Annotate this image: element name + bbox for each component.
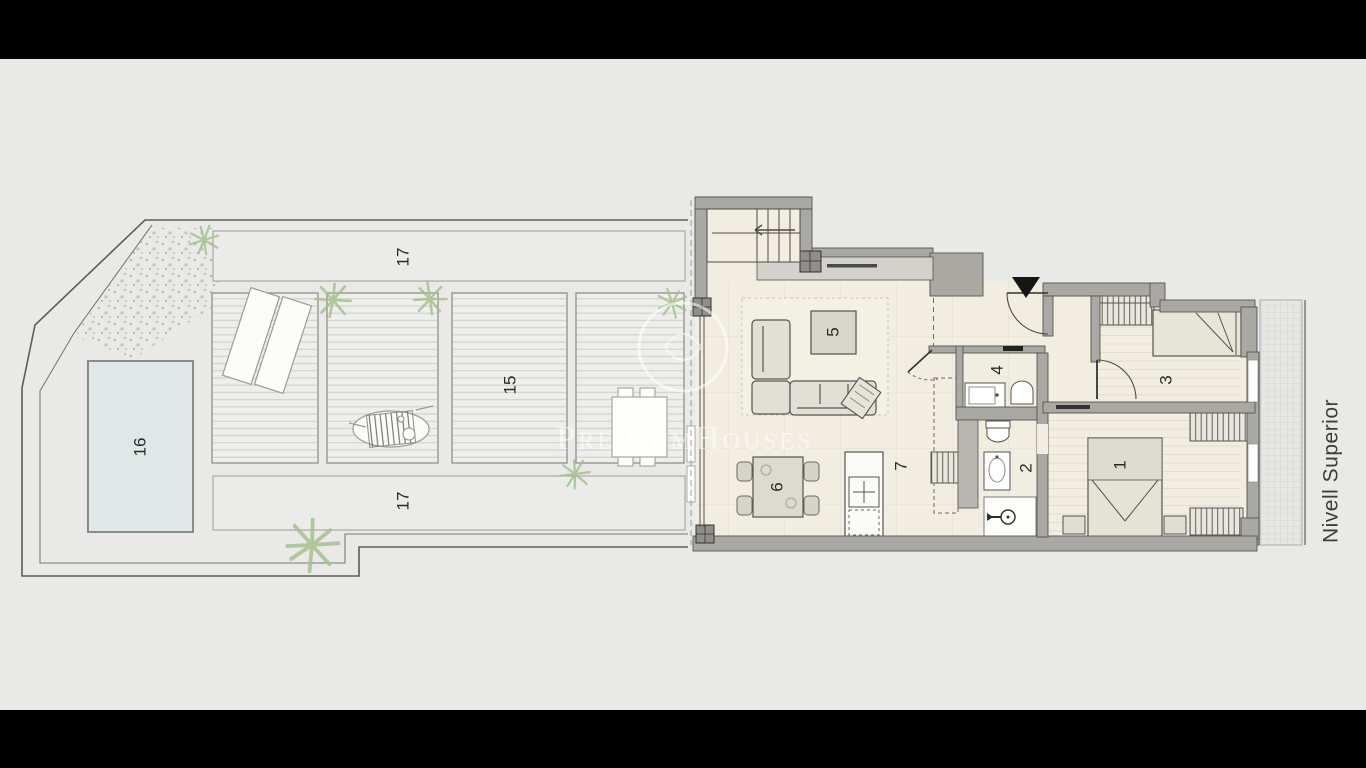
deck-label: 15 <box>501 376 520 395</box>
terrace-strip-bottom: 17 <box>213 476 685 530</box>
letterbox-top <box>0 0 1366 59</box>
kitchen-appliance <box>931 452 958 483</box>
terrace-strip-top: 17 <box>213 231 685 281</box>
level-label: Nivell Superior <box>1320 399 1343 543</box>
dining-label: 6 <box>768 482 787 491</box>
kitchen-label: 7 <box>892 461 911 470</box>
bathroom-door-opening <box>1037 424 1048 454</box>
wardrobe-top <box>1190 413 1250 441</box>
floor-plan-page: 16 17 17 <box>0 0 1366 768</box>
staircase <box>707 209 800 262</box>
bathroom-label: 2 <box>1017 463 1036 472</box>
terrace-strip-bottom-label: 17 <box>394 492 413 511</box>
pool: 16 <box>88 361 193 532</box>
nightstand-left <box>1063 516 1085 534</box>
shower <box>984 497 1036 537</box>
floor-plan-svg: 16 17 17 <box>0 0 1366 768</box>
watermark-brand: PremiumHouses <box>556 420 813 457</box>
wardrobe <box>1096 295 1154 325</box>
nightstand-right <box>1164 516 1186 534</box>
double-bed <box>1088 438 1162 537</box>
bedroom1-label: 1 <box>1111 460 1130 469</box>
kitchen-counter <box>958 420 978 508</box>
gravel-bed <box>74 228 220 360</box>
living-room-label: 5 <box>824 327 843 336</box>
bedroom2-label: 3 <box>1157 375 1176 384</box>
coffee-table: 5 <box>811 311 856 354</box>
dark-wall-unit <box>1003 346 1023 351</box>
wardrobe-bottom <box>1190 508 1243 535</box>
gallery-shelf <box>827 264 877 268</box>
apartment: 5 6 7 <box>687 197 1305 551</box>
letterbox-bottom <box>0 710 1366 768</box>
pool-label: 16 <box>131 438 150 457</box>
toilet-label: 4 <box>988 365 1007 374</box>
bedroom1-sliding-door <box>1056 405 1090 409</box>
terrace-strip-top-label: 17 <box>394 248 413 267</box>
terrace-area: 16 17 17 <box>22 220 692 578</box>
single-bed <box>1153 310 1241 356</box>
